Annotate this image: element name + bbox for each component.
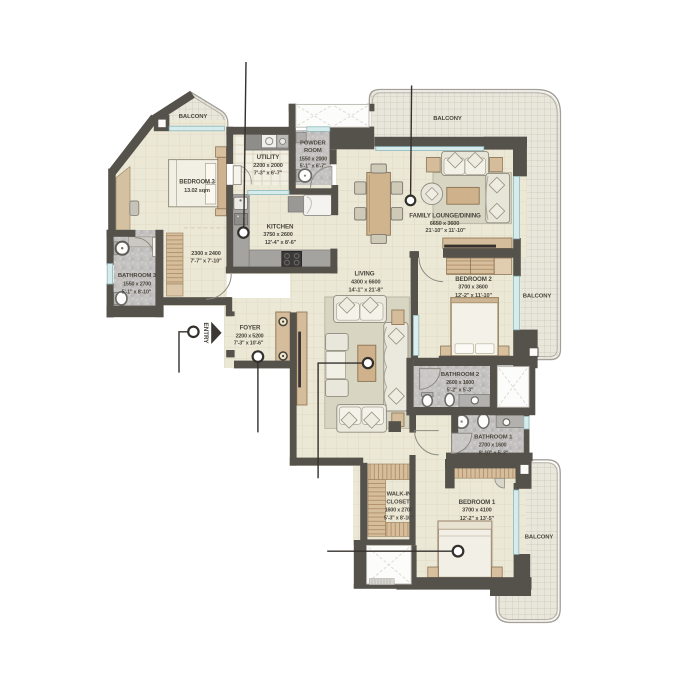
svg-text:5'-1" x 8'-10": 5'-1" x 8'-10" — [122, 289, 152, 295]
svg-text:BALCONY: BALCONY — [179, 114, 208, 120]
svg-text:2200 x 2000: 2200 x 2000 — [253, 163, 282, 169]
svg-text:BEDROOM 2: BEDROOM 2 — [455, 276, 492, 283]
svg-text:KITCHEN: KITCHEN — [267, 224, 294, 231]
svg-text:7'-7" x 7'-10": 7'-7" x 7'-10" — [190, 258, 222, 264]
svg-text:12'-2" x 13'-5": 12'-2" x 13'-5" — [460, 516, 495, 522]
svg-text:3700 x 3600: 3700 x 3600 — [458, 285, 487, 291]
svg-text:WALK-IN: WALK-IN — [387, 491, 412, 497]
svg-text:3750 x 2600: 3750 x 2600 — [263, 232, 292, 238]
svg-text:ENTRY: ENTRY — [202, 323, 209, 345]
svg-text:BATHROOM 2: BATHROOM 2 — [441, 372, 480, 378]
svg-text:BEDROOM 1: BEDROOM 1 — [459, 499, 496, 506]
svg-text:2600 x 1600: 2600 x 1600 — [446, 380, 474, 386]
svg-text:21'-10" x 11'-10": 21'-10" x 11'-10" — [426, 228, 466, 234]
svg-text:CLOSET: CLOSET — [386, 499, 410, 505]
svg-text:7'-3" x 6'-7": 7'-3" x 6'-7" — [254, 170, 283, 176]
svg-text:ROOM: ROOM — [304, 148, 322, 154]
svg-text:BATHROOM 3: BATHROOM 3 — [118, 273, 157, 279]
svg-text:UTILITY: UTILITY — [257, 154, 281, 161]
svg-text:BALCONY: BALCONY — [523, 293, 552, 299]
svg-text:14'-1" x 21'-8": 14'-1" x 21'-8" — [349, 287, 384, 293]
svg-text:2700 x 1600: 2700 x 1600 — [479, 443, 507, 449]
svg-text:1550 x 2700: 1550 x 2700 — [123, 282, 151, 288]
svg-text:BALCONY: BALCONY — [433, 116, 462, 122]
svg-text:8'-10" x 5'-3": 8'-10" x 5'-3" — [479, 450, 509, 456]
svg-text:5'-2" x 5'-3": 5'-2" x 5'-3" — [447, 387, 474, 393]
svg-text:12'-4" x 8'-6": 12'-4" x 8'-6" — [265, 240, 297, 246]
svg-text:12'-2" x 11'-10": 12'-2" x 11'-10" — [455, 293, 492, 299]
svg-text:13.02 sqm: 13.02 sqm — [184, 188, 210, 194]
svg-text:FOYER: FOYER — [240, 325, 261, 332]
svg-text:7'-3" x 10'-6": 7'-3" x 10'-6" — [234, 340, 264, 346]
svg-text:5'-3" x 8'-10": 5'-3" x 8'-10" — [384, 516, 414, 522]
svg-text:POWDER: POWDER — [300, 140, 326, 146]
svg-text:1600 x 2700: 1600 x 2700 — [385, 508, 413, 514]
svg-text:6650 x 3600: 6650 x 3600 — [430, 221, 459, 227]
svg-text:BALCONY: BALCONY — [525, 534, 554, 540]
svg-text:3700 x 4100: 3700 x 4100 — [462, 508, 491, 514]
svg-text:2200 x 5200: 2200 x 5200 — [236, 333, 264, 339]
svg-text:5'-1" x 6'-7": 5'-1" x 6'-7" — [300, 163, 327, 169]
svg-text:4300 x 6600: 4300 x 6600 — [351, 279, 380, 285]
svg-text:LIVING: LIVING — [354, 270, 374, 277]
svg-text:BATHROOM 1: BATHROOM 1 — [474, 435, 513, 441]
svg-text:FAMILY LOUNGE/DINING: FAMILY LOUNGE/DINING — [409, 213, 481, 220]
svg-text:1550 x 2000: 1550 x 2000 — [299, 156, 327, 162]
svg-text:BEDROOM 3: BEDROOM 3 — [179, 180, 215, 186]
svg-text:2300 x 2400: 2300 x 2400 — [191, 251, 220, 257]
